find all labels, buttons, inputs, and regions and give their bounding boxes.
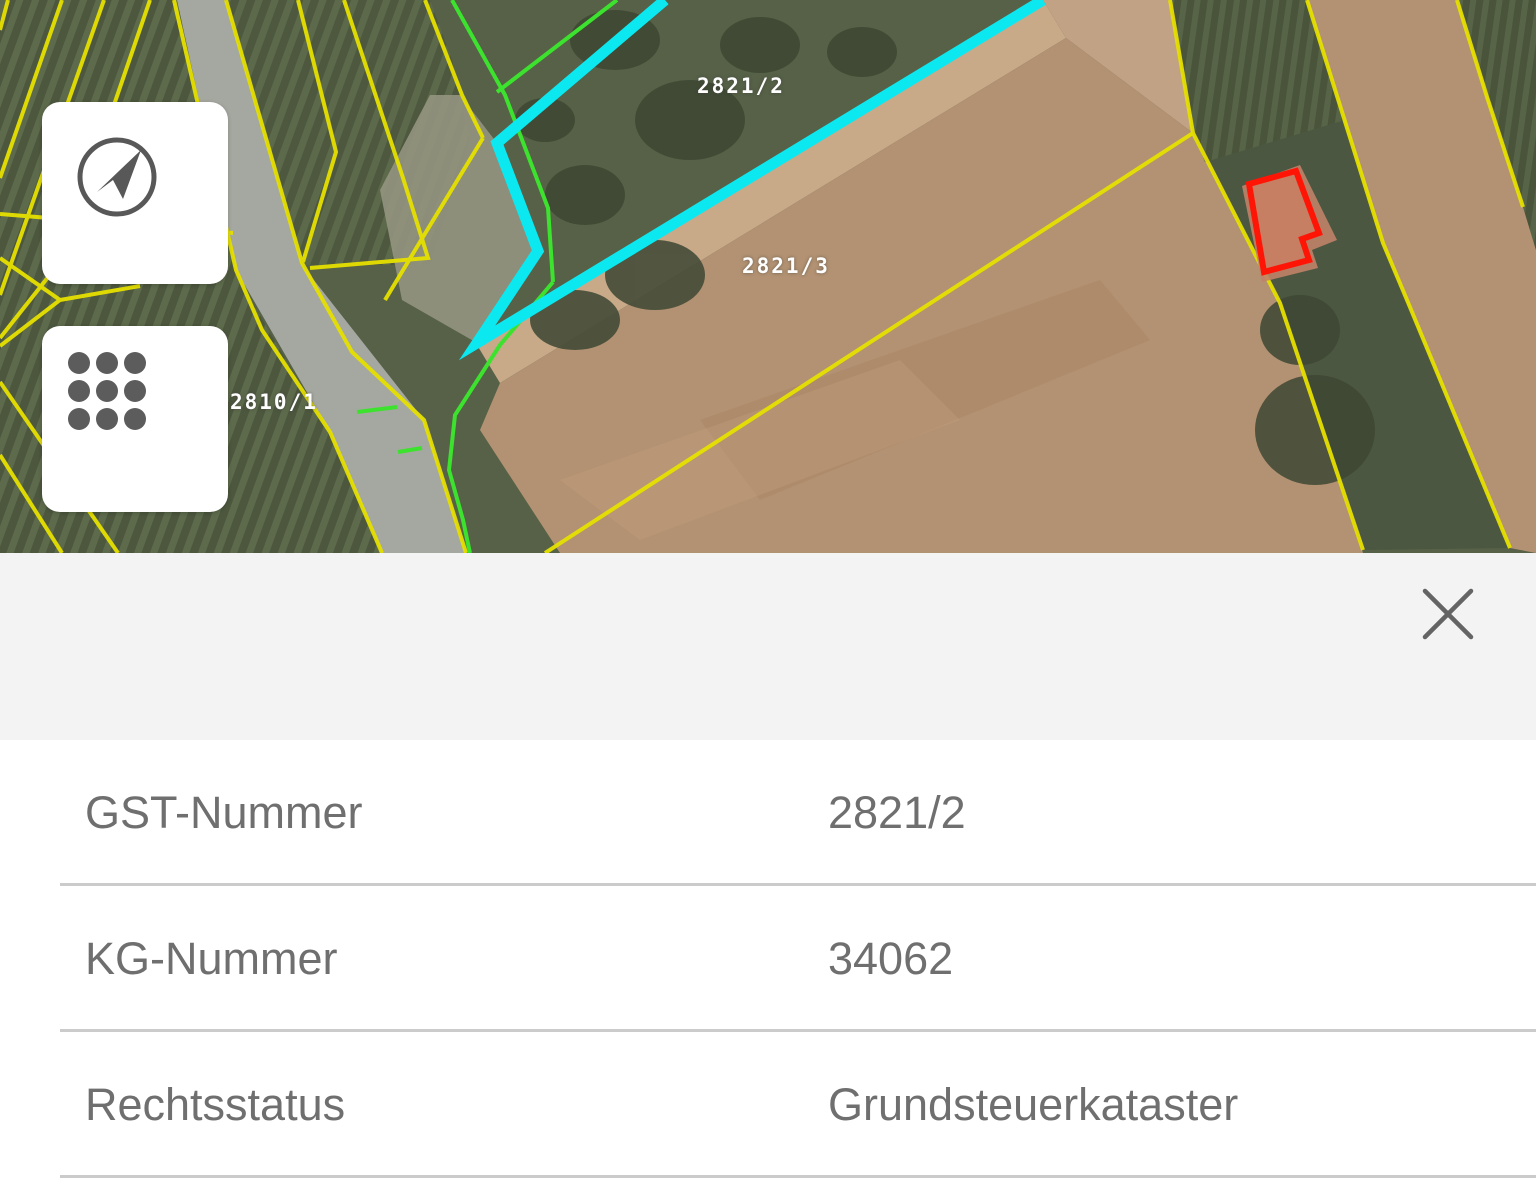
parcel-label: 2821/3	[742, 254, 830, 278]
app-screen: 2821/2 2821/3 2810/1	[0, 0, 1536, 1188]
layers-grid-button[interactable]	[42, 326, 228, 512]
close-button[interactable]	[1412, 579, 1484, 651]
row-label: KG-Nummer	[85, 933, 338, 985]
row-value: 34062	[828, 933, 953, 985]
panel-header	[0, 553, 1536, 740]
parcel-info-panel: GST-Nummer 2821/2 KG-Nummer 34062 Rechts…	[0, 553, 1536, 1188]
parcel-label: 2821/2	[697, 74, 785, 98]
row-value: 2821/2	[828, 787, 966, 839]
parcel-label: 2810/1	[230, 390, 318, 414]
table-row: GST-Nummer 2821/2	[0, 740, 1536, 886]
row-divider	[60, 1175, 1536, 1178]
table-row: KG-Nummer 34062	[0, 886, 1536, 1032]
cadastral-map[interactable]: 2821/2 2821/3 2810/1	[0, 0, 1536, 553]
row-value: Grundsteuerkataster	[828, 1079, 1238, 1131]
table-row: Rechtsstatus Grundsteuerkataster	[0, 1032, 1536, 1178]
row-label: GST-Nummer	[85, 787, 363, 839]
row-label: Rechtsstatus	[85, 1079, 345, 1131]
locate-me-button[interactable]	[42, 102, 228, 284]
parcel-attribute-table: GST-Nummer 2821/2 KG-Nummer 34062 Rechts…	[0, 740, 1536, 1178]
close-icon	[1417, 583, 1479, 648]
